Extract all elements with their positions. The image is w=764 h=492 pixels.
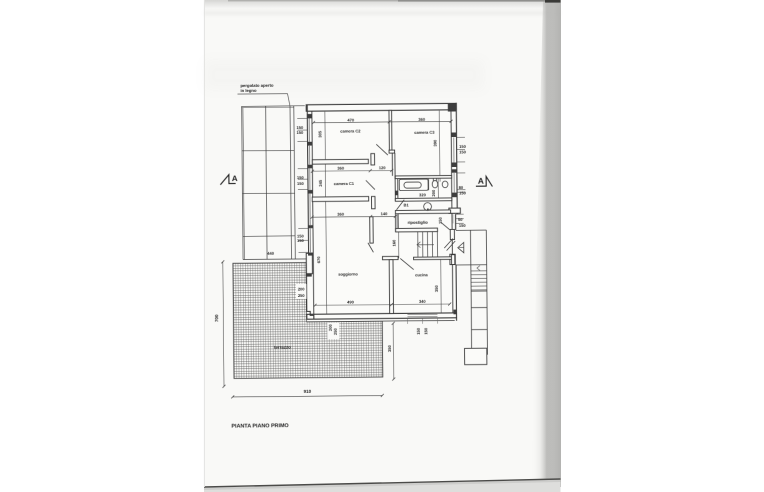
svg-text:150: 150	[423, 327, 428, 334]
svg-text:cucina: cucina	[415, 272, 428, 277]
svg-text:490: 490	[347, 299, 354, 304]
svg-text:360: 360	[337, 166, 344, 171]
svg-text:910: 910	[304, 389, 312, 394]
svg-text:150: 150	[297, 175, 304, 180]
svg-text:340: 340	[419, 299, 426, 304]
svg-text:360: 360	[418, 117, 425, 122]
svg-text:camera C1: camera C1	[334, 181, 355, 186]
svg-text:440: 440	[267, 251, 274, 256]
svg-text:150: 150	[297, 238, 304, 243]
svg-text:470: 470	[347, 118, 354, 123]
svg-text:350: 350	[387, 344, 392, 351]
svg-text:160: 160	[391, 239, 396, 246]
svg-text:camera C2: camera C2	[340, 128, 361, 133]
svg-text:B1: B1	[403, 203, 409, 208]
svg-text:250: 250	[298, 293, 305, 298]
svg-text:150: 150	[459, 149, 466, 154]
svg-text:150: 150	[296, 125, 303, 130]
svg-text:120: 120	[379, 165, 386, 170]
svg-text:150: 150	[416, 327, 421, 334]
svg-text:140: 140	[381, 211, 388, 216]
svg-text:200: 200	[431, 189, 436, 196]
svg-text:soggiorno: soggiorno	[338, 272, 358, 277]
svg-text:in legno: in legno	[240, 88, 257, 93]
svg-text:150: 150	[459, 223, 466, 228]
svg-text:terrazzo: terrazzo	[274, 344, 291, 349]
svg-text:150: 150	[459, 190, 466, 195]
svg-text:700: 700	[214, 314, 219, 322]
svg-text:390: 390	[432, 139, 437, 146]
svg-text:245: 245	[318, 179, 323, 186]
svg-text:PIANTA PIANO PRIMO: PIANTA PIANO PRIMO	[231, 423, 288, 430]
svg-text:305: 305	[317, 130, 322, 137]
svg-text:320: 320	[419, 192, 426, 197]
svg-text:360: 360	[337, 212, 344, 217]
svg-text:350: 350	[434, 285, 439, 292]
svg-text:ripostiglio: ripostiglio	[408, 220, 429, 225]
svg-text:250: 250	[333, 328, 338, 335]
svg-text:150: 150	[437, 217, 442, 224]
svg-text:200: 200	[298, 287, 305, 292]
svg-text:camera C3: camera C3	[414, 129, 435, 134]
svg-text:670: 670	[316, 256, 321, 263]
svg-text:150: 150	[297, 130, 304, 135]
svg-text:150: 150	[297, 181, 304, 186]
svg-text:A: A	[232, 174, 238, 183]
svg-text:A: A	[478, 176, 484, 186]
